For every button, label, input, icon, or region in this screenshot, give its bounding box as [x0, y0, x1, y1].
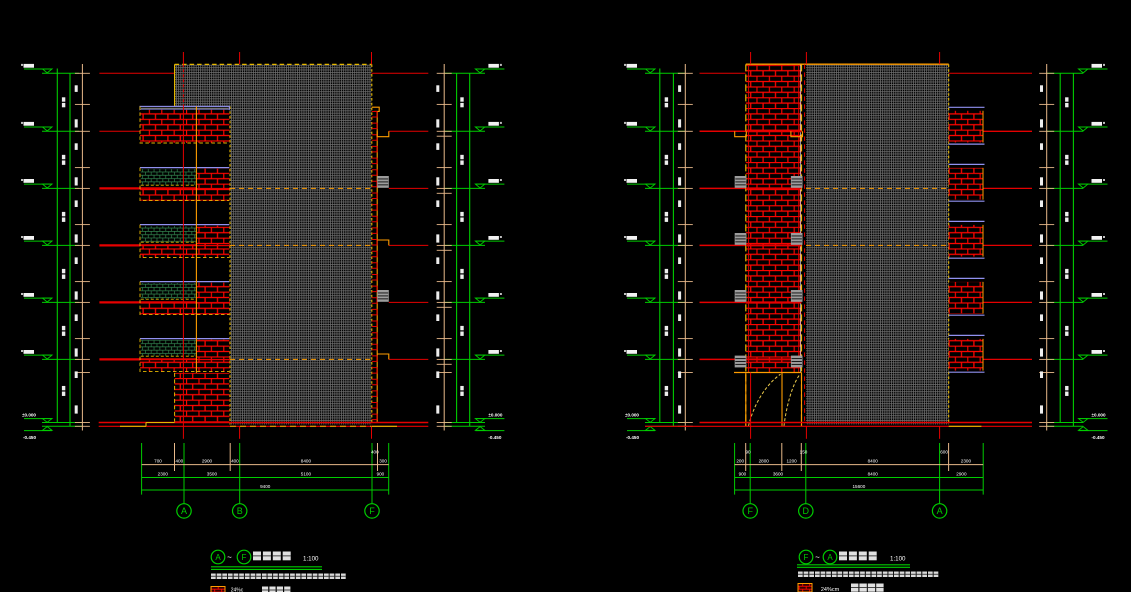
svg-text:8400: 8400	[868, 458, 879, 463]
svg-text:1:100: 1:100	[303, 556, 319, 563]
svg-text:±0.000: ±0.000	[625, 412, 639, 417]
svg-text:F: F	[804, 553, 809, 562]
svg-text:2900: 2900	[202, 458, 213, 463]
svg-text:90: 90	[745, 450, 751, 455]
svg-text:-0.450: -0.450	[488, 435, 501, 440]
svg-text:600: 600	[940, 450, 948, 455]
svg-text:400: 400	[175, 458, 183, 463]
svg-text:300: 300	[379, 458, 387, 463]
svg-text:D: D	[803, 506, 810, 516]
svg-text:2900: 2900	[956, 471, 967, 476]
svg-text:700: 700	[154, 458, 162, 463]
svg-text:8400: 8400	[301, 458, 312, 463]
svg-text:200: 200	[736, 458, 744, 463]
svg-text:-0.450: -0.450	[1092, 435, 1105, 440]
svg-text:A: A	[827, 553, 833, 562]
svg-text:A: A	[937, 506, 943, 516]
svg-text:F: F	[747, 506, 753, 516]
svg-text:~: ~	[815, 553, 820, 562]
svg-text:400: 400	[231, 458, 239, 463]
svg-text:±0.000: ±0.000	[22, 412, 36, 417]
svg-text:8400: 8400	[868, 471, 879, 476]
svg-text:1:100: 1:100	[890, 556, 906, 563]
svg-text:B: B	[237, 506, 243, 516]
svg-text:24%cm: 24%cm	[821, 587, 840, 592]
svg-text:1200: 1200	[786, 458, 797, 463]
svg-text:±0.000: ±0.000	[1092, 412, 1106, 417]
svg-text:±0.000: ±0.000	[488, 412, 502, 417]
svg-text:3500: 3500	[207, 471, 218, 476]
svg-text:2300: 2300	[158, 471, 169, 476]
svg-text:-0.450: -0.450	[626, 435, 639, 440]
svg-text:~: ~	[227, 553, 232, 562]
svg-text:900: 900	[739, 471, 747, 476]
svg-text:3600: 3600	[773, 471, 784, 476]
svg-text:5100: 5100	[301, 471, 312, 476]
svg-text:24%c: 24%c	[231, 588, 244, 592]
svg-text:F: F	[369, 506, 375, 516]
svg-text:400: 400	[371, 450, 379, 455]
svg-text:A: A	[181, 506, 187, 516]
svg-text:900: 900	[377, 471, 385, 476]
svg-text:2300: 2300	[961, 458, 972, 463]
svg-text:9400: 9400	[260, 484, 271, 489]
svg-text:F: F	[242, 553, 247, 562]
svg-text:A: A	[215, 553, 221, 562]
svg-text:2800: 2800	[759, 458, 770, 463]
svg-text:-0.450: -0.450	[23, 435, 36, 440]
svg-text:15600: 15600	[853, 484, 866, 489]
svg-text:150: 150	[800, 450, 808, 455]
